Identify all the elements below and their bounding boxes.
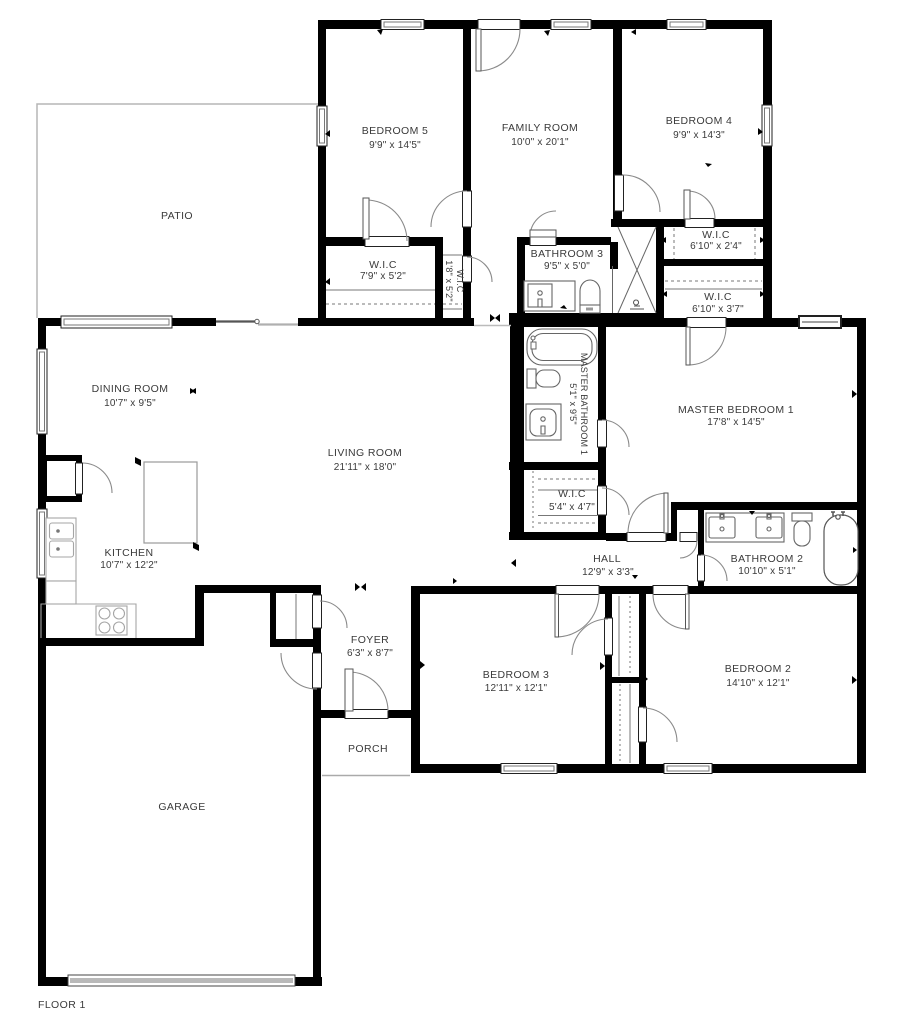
svg-text:9'9" x 14'5": 9'9" x 14'5" — [369, 140, 421, 151]
svg-text:BEDROOM 5: BEDROOM 5 — [362, 125, 429, 137]
svg-text:PATIO: PATIO — [161, 210, 193, 222]
svg-text:KITCHEN: KITCHEN — [105, 547, 154, 559]
svg-text:MASTER BATHROOM 1: MASTER BATHROOM 1 — [579, 353, 589, 455]
svg-text:DINING ROOM: DINING ROOM — [92, 383, 169, 395]
svg-text:W.I.C: W.I.C — [704, 291, 732, 303]
svg-text:9'5" x 5'0": 9'5" x 5'0" — [544, 261, 590, 272]
svg-text:HALL: HALL — [593, 553, 621, 565]
svg-text:12'11" x 12'1": 12'11" x 12'1" — [485, 683, 548, 694]
svg-text:BATHROOM 3: BATHROOM 3 — [531, 248, 604, 260]
svg-text:5'1" x 9'5": 5'1" x 9'5" — [568, 383, 578, 425]
svg-text:BEDROOM 4: BEDROOM 4 — [666, 115, 733, 127]
svg-text:FAMILY ROOM: FAMILY ROOM — [502, 122, 578, 134]
svg-text:9'9" x 14'3": 9'9" x 14'3" — [673, 130, 725, 141]
svg-text:W.I.C: W.I.C — [369, 259, 397, 271]
svg-text:W.I.C: W.I.C — [702, 229, 730, 241]
svg-text:10'0" x 20'1": 10'0" x 20'1" — [511, 137, 569, 148]
svg-text:6'3" x 8'7": 6'3" x 8'7" — [347, 648, 393, 659]
svg-text:LIVING ROOM: LIVING ROOM — [328, 447, 402, 459]
svg-text:PORCH: PORCH — [348, 743, 388, 755]
svg-text:6'10" x 3'7": 6'10" x 3'7" — [692, 304, 744, 315]
svg-text:BATHROOM 2: BATHROOM 2 — [731, 553, 804, 565]
svg-text:10'7" x 12'2": 10'7" x 12'2" — [100, 560, 158, 571]
svg-text:BEDROOM 2: BEDROOM 2 — [725, 663, 792, 675]
svg-text:FLOOR 1: FLOOR 1 — [38, 999, 86, 1011]
svg-text:GARAGE: GARAGE — [158, 801, 205, 813]
svg-text:FOYER: FOYER — [351, 634, 389, 646]
svg-text:1'8" x 5'2": 1'8" x 5'2" — [444, 260, 454, 302]
svg-text:21'11" x 18'0": 21'11" x 18'0" — [334, 462, 397, 473]
svg-text:BEDROOM 3: BEDROOM 3 — [483, 669, 550, 681]
svg-text:10'7" x 9'5": 10'7" x 9'5" — [104, 398, 156, 409]
svg-text:W.I.C: W.I.C — [558, 488, 586, 500]
svg-text:6'10" x 2'4": 6'10" x 2'4" — [690, 241, 742, 252]
svg-text:12'9" x 3'3": 12'9" x 3'3" — [582, 567, 634, 578]
svg-text:W.I.C: W.I.C — [455, 270, 465, 293]
svg-text:5'4" x 4'7": 5'4" x 4'7" — [549, 502, 595, 513]
svg-text:14'10" x 12'1": 14'10" x 12'1" — [726, 678, 789, 689]
svg-text:7'9" x 5'2": 7'9" x 5'2" — [360, 271, 406, 282]
svg-text:MASTER BEDROOM 1: MASTER BEDROOM 1 — [678, 404, 794, 416]
svg-text:17'8" x 14'5": 17'8" x 14'5" — [707, 417, 765, 428]
svg-text:10'10" x 5'1": 10'10" x 5'1" — [738, 566, 796, 577]
